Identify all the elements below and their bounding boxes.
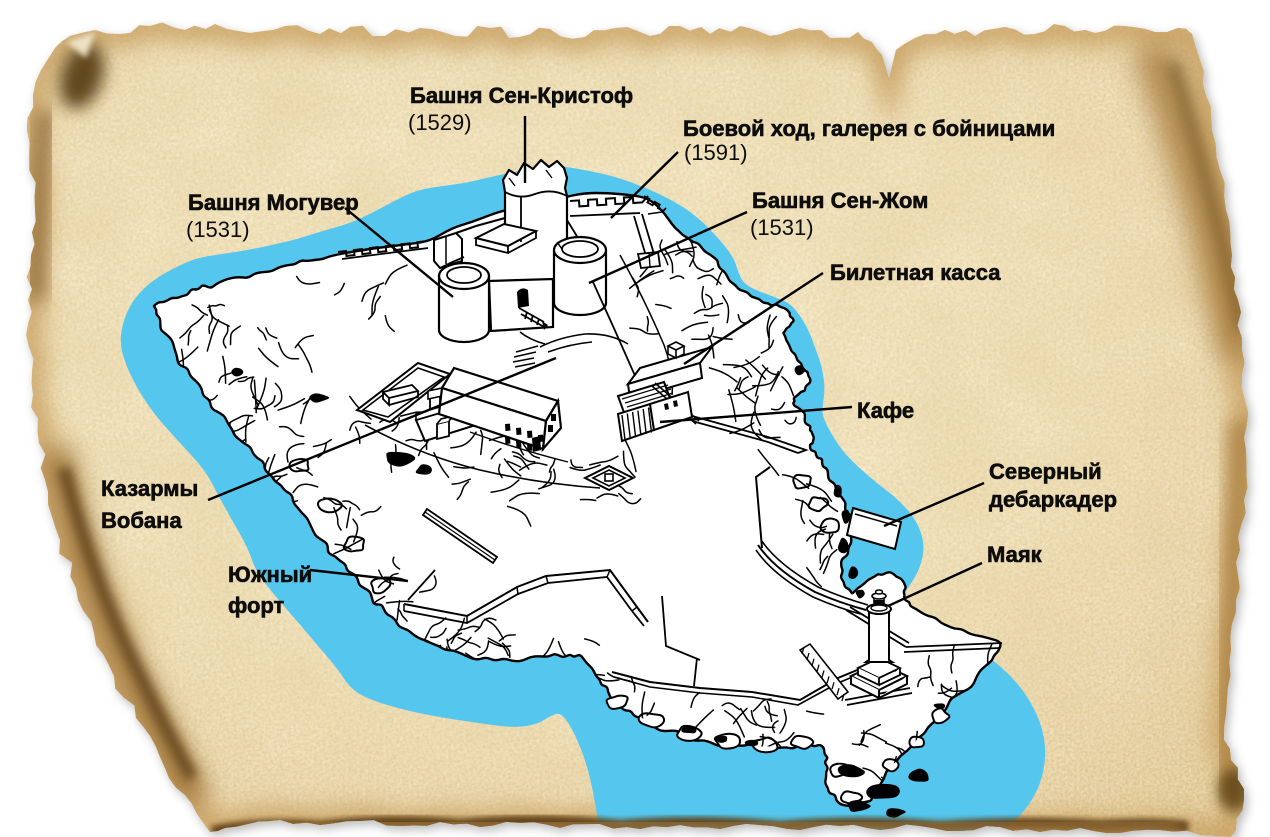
svg-text:Северный: Северный — [989, 459, 1102, 484]
svg-text:(1591): (1591) — [684, 140, 748, 165]
svg-text:Билетная касса: Билетная касса — [830, 260, 1001, 285]
svg-text:Боевой ход, галерея с бойницам: Боевой ход, галерея с бойницами — [683, 116, 1055, 141]
svg-text:(1529): (1529) — [408, 110, 472, 135]
svg-text:(1531): (1531) — [186, 217, 250, 242]
svg-text:Маяк: Маяк — [987, 542, 1043, 567]
svg-text:Южный: Южный — [228, 562, 312, 587]
svg-text:Башня Сен-Кристоф: Башня Сен-Кристоф — [410, 83, 633, 108]
svg-text:(1531): (1531) — [750, 215, 814, 240]
svg-text:Башня Могувер: Башня Могувер — [188, 190, 359, 215]
svg-text:Казармы: Казармы — [101, 476, 198, 501]
svg-text:Башня Сен-Жом: Башня Сен-Жом — [752, 188, 928, 213]
svg-text:Кафе: Кафе — [857, 398, 914, 423]
svg-text:дебаркадер: дебаркадер — [989, 487, 1117, 512]
svg-text:Вобана: Вобана — [101, 508, 182, 533]
svg-text:форт: форт — [228, 593, 285, 618]
